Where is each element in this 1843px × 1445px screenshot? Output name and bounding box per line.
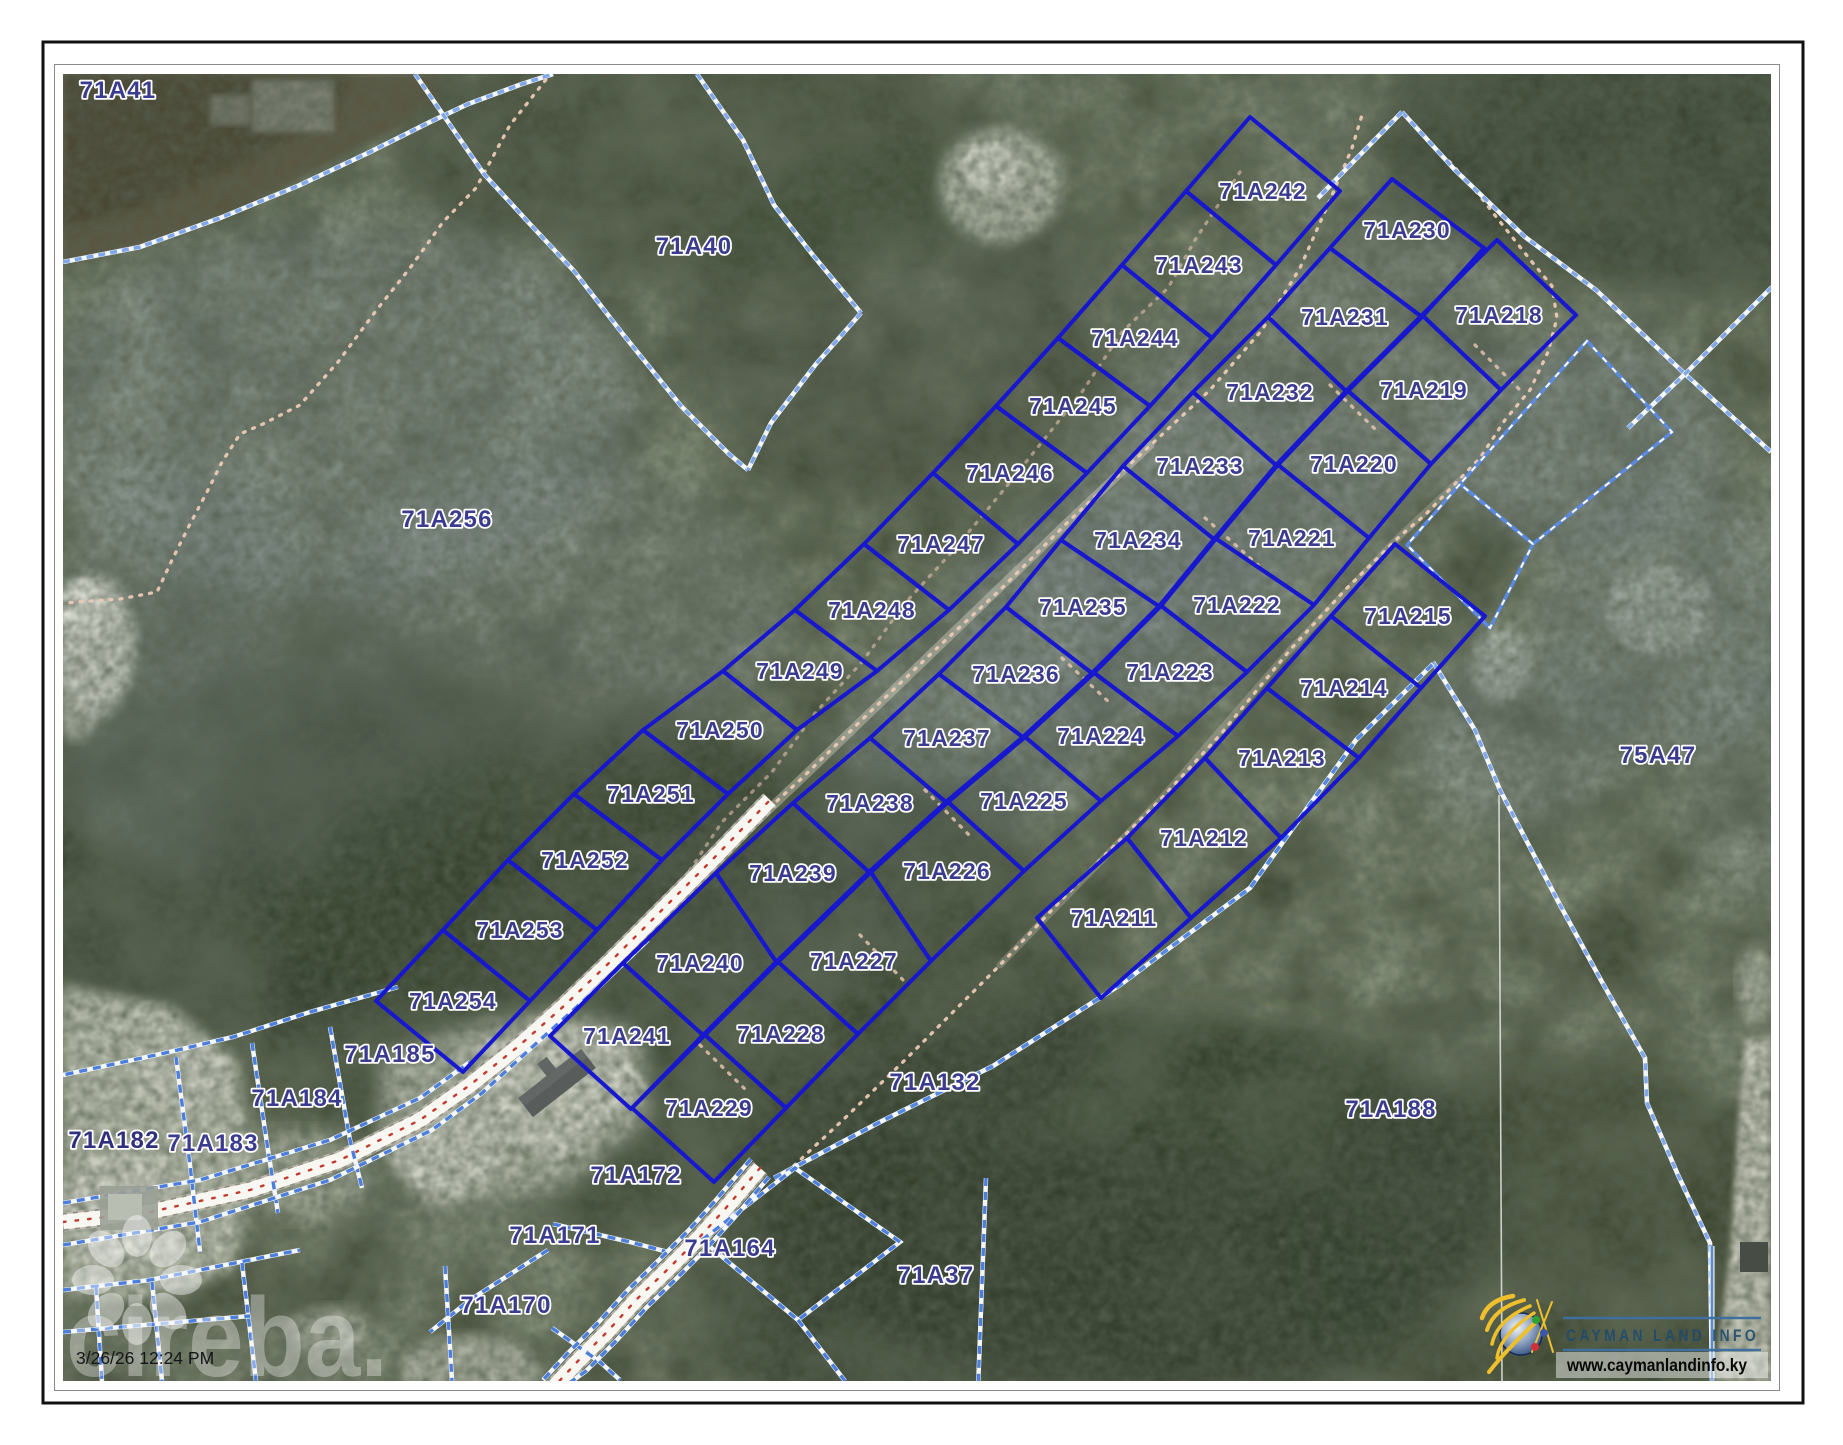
svg-text:71A215: 71A215 (1364, 603, 1452, 629)
svg-text:71A223: 71A223 (1126, 659, 1214, 685)
svg-text:71A244: 71A244 (1091, 325, 1179, 351)
svg-text:71A214: 71A214 (1300, 675, 1388, 701)
svg-text:71A183: 71A183 (167, 1130, 258, 1157)
svg-text:71A225: 71A225 (980, 788, 1068, 814)
svg-text:71A254: 71A254 (409, 988, 497, 1014)
svg-text:71A246: 71A246 (966, 460, 1054, 486)
svg-text:71A182: 71A182 (68, 1127, 159, 1154)
svg-text:71A212: 71A212 (1160, 825, 1248, 851)
svg-text:71A170: 71A170 (460, 1292, 551, 1319)
svg-text:75A47: 75A47 (1620, 742, 1697, 769)
svg-text:71A233: 71A233 (1156, 453, 1244, 479)
svg-text:71A232: 71A232 (1226, 379, 1314, 405)
svg-text:71A221: 71A221 (1248, 525, 1336, 551)
svg-text:71A184: 71A184 (251, 1085, 342, 1112)
svg-text:71A40: 71A40 (656, 233, 733, 260)
svg-text:71A235: 71A235 (1039, 594, 1127, 620)
svg-text:CAYMAN LAND INFO: CAYMAN LAND INFO (1566, 1327, 1759, 1345)
svg-text:71A218: 71A218 (1455, 302, 1543, 328)
svg-text:71A211: 71A211 (1071, 905, 1158, 931)
svg-text:71A224: 71A224 (1057, 723, 1145, 749)
svg-text:71A41: 71A41 (80, 77, 157, 104)
svg-text:71A252: 71A252 (541, 847, 629, 873)
svg-text:71A164: 71A164 (684, 1235, 775, 1262)
svg-text:71A234: 71A234 (1094, 527, 1182, 553)
svg-text:71A249: 71A249 (756, 658, 844, 684)
svg-text:71A227: 71A227 (810, 948, 898, 974)
svg-text:71A220: 71A220 (1310, 451, 1398, 477)
svg-text:71A239: 71A239 (749, 860, 837, 886)
svg-text:71A251: 71A251 (607, 781, 695, 807)
svg-text:71A188: 71A188 (1345, 1096, 1436, 1123)
svg-text:71A37: 71A37 (898, 1262, 975, 1289)
svg-text:71A222: 71A222 (1193, 592, 1281, 618)
svg-text:71A226: 71A226 (903, 858, 991, 884)
svg-text:71A248: 71A248 (828, 597, 916, 623)
svg-text:71A132: 71A132 (889, 1069, 980, 1096)
svg-text:71A185: 71A185 (344, 1041, 435, 1068)
svg-text:71A229: 71A229 (665, 1095, 753, 1121)
svg-text:71A241: 71A241 (583, 1023, 671, 1049)
svg-text:71A228: 71A228 (737, 1021, 825, 1047)
svg-text:3/26/26 12:24 PM: 3/26/26 12:24 PM (76, 1348, 214, 1368)
svg-text:71A240: 71A240 (656, 950, 744, 976)
svg-text:71A247: 71A247 (897, 531, 985, 557)
svg-text:71A243: 71A243 (1155, 252, 1243, 278)
svg-text:71A213: 71A213 (1238, 745, 1326, 771)
svg-text:71A237: 71A237 (903, 725, 991, 751)
svg-text:71A171: 71A171 (509, 1222, 600, 1249)
svg-text:71A236: 71A236 (972, 661, 1060, 687)
svg-text:71A230: 71A230 (1363, 217, 1451, 243)
svg-text:www.caymanlandinfo.ky: www.caymanlandinfo.ky (1566, 1355, 1747, 1375)
svg-text:71A245: 71A245 (1029, 393, 1117, 419)
svg-text:71A219: 71A219 (1380, 377, 1468, 403)
svg-text:71A250: 71A250 (676, 717, 764, 743)
svg-text:71A172: 71A172 (590, 1162, 681, 1189)
svg-text:71A238: 71A238 (826, 790, 914, 816)
svg-text:71A242: 71A242 (1219, 178, 1307, 204)
svg-text:71A231: 71A231 (1301, 304, 1389, 330)
svg-text:71A253: 71A253 (476, 917, 564, 943)
svg-text:71A256: 71A256 (401, 506, 492, 533)
